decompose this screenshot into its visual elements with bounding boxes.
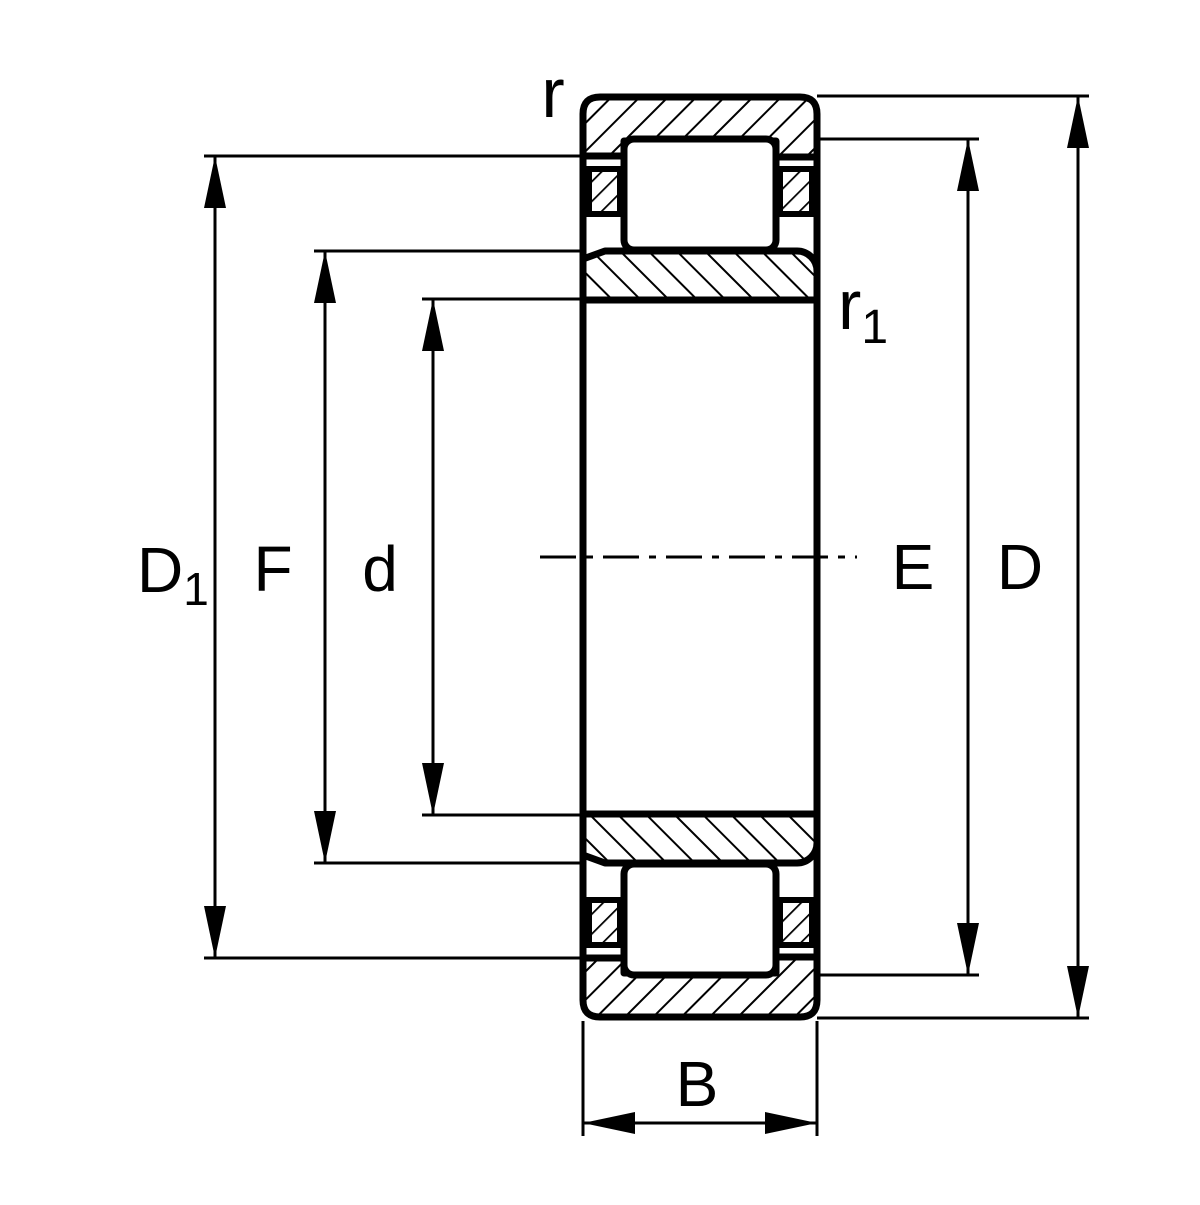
arrow-d1-down — [204, 906, 226, 958]
drawing-canvas: D1 F d E D B r r1 — [0, 0, 1200, 1200]
arrow-dd-up — [1067, 96, 1089, 148]
arrow-f-up — [314, 251, 336, 303]
label-D: D — [997, 531, 1043, 603]
arrow-e-up — [957, 139, 979, 191]
arrow-e-down — [957, 923, 979, 975]
label-r1-base: r — [838, 266, 861, 344]
arrow-f-down — [314, 811, 336, 863]
bearing-technical-drawing: D1 F d E D B r r1 — [0, 0, 1200, 1200]
label-D1-base: D — [137, 534, 183, 606]
label-F: F — [253, 533, 292, 605]
label-B: B — [676, 1048, 719, 1120]
cage-bottom-right — [780, 900, 812, 945]
cage-bottom-left — [589, 900, 620, 945]
arrow-d-up — [422, 299, 444, 351]
arrow-b-right — [765, 1112, 817, 1134]
roller-bottom — [624, 864, 776, 975]
arrow-dd-down — [1067, 966, 1089, 1018]
label-D1-sub: 1 — [183, 563, 209, 615]
label-D1: D1 — [137, 534, 209, 615]
arrow-b-left — [583, 1112, 635, 1134]
inner-ring-top-section — [583, 251, 817, 300]
label-E: E — [892, 531, 935, 603]
cage-top-left — [589, 169, 620, 214]
inner-ring-bottom-section — [583, 814, 817, 863]
label-d: d — [362, 533, 398, 605]
arrow-d1-up — [204, 156, 226, 208]
cage-top-right — [780, 169, 812, 214]
label-r1-sub: 1 — [861, 301, 888, 354]
label-r: r — [541, 54, 564, 132]
label-r1: r1 — [838, 266, 888, 354]
roller-top — [624, 139, 776, 250]
arrow-d-down — [422, 763, 444, 815]
bearing-section — [540, 97, 857, 1017]
